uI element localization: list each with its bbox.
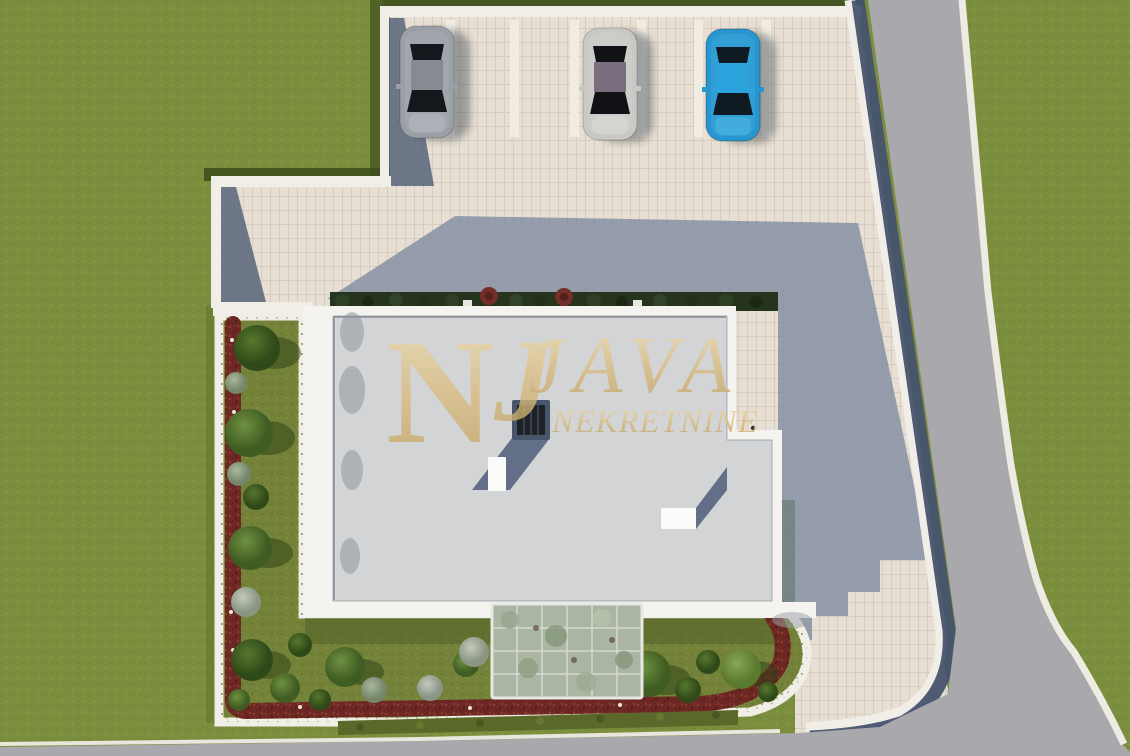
tree (228, 526, 272, 570)
curb-parking-left (380, 6, 389, 187)
flower-cluster (229, 610, 233, 614)
tree (231, 639, 273, 681)
car-mirror-right (757, 87, 764, 92)
car-windshield (590, 92, 630, 114)
curb-courtyard-top (211, 176, 391, 187)
bush (696, 650, 720, 674)
parked-car-2 (579, 28, 653, 142)
car-mirror-left (702, 87, 709, 92)
hedge-bush (656, 713, 664, 721)
car-mirror-right (451, 84, 458, 89)
vine-clump (545, 625, 567, 647)
car-windshield (713, 93, 753, 115)
hedge-bush (653, 294, 667, 308)
hedge-bush (596, 715, 604, 723)
bush (361, 677, 387, 703)
vine-clump (615, 651, 633, 669)
flower-cluster (298, 705, 302, 709)
bush (758, 682, 778, 702)
cast-shadow (772, 612, 812, 628)
hedge-bush (712, 711, 720, 719)
hedge-bush (335, 294, 349, 308)
car-mirror-right (634, 86, 641, 91)
vine-clump (501, 611, 519, 629)
car-windshield (407, 90, 447, 112)
hedge-bush (389, 293, 403, 307)
hedge-bush (476, 719, 484, 727)
bush-gray (459, 637, 489, 667)
cast-shadow (339, 366, 365, 414)
car-sunroof (594, 62, 626, 92)
tree (225, 409, 273, 457)
vine-clump (576, 672, 596, 692)
hedge-bush (445, 294, 459, 308)
car-roof (411, 60, 443, 90)
hedge-bush (750, 296, 762, 308)
bush-gray (417, 675, 443, 701)
car-rear-window (593, 46, 627, 62)
curb-courtyard-left (211, 176, 221, 308)
parking-stripe (570, 20, 579, 137)
hedge-post (463, 300, 472, 307)
hedge-bush (719, 294, 733, 308)
watermark-title: JAVA (528, 322, 740, 410)
cast-shadow (341, 450, 363, 490)
bush (243, 484, 269, 510)
render-canvas: N J JAVA NEKRETNINE (0, 0, 1130, 756)
bush (228, 689, 250, 711)
flower-cluster (468, 706, 472, 710)
hedge-post (633, 300, 642, 307)
branch-gap (533, 625, 539, 631)
parking-stripe (510, 20, 519, 137)
parked-car-1 (396, 26, 470, 140)
bush (225, 372, 247, 394)
hedge-bush (416, 721, 424, 729)
hedge-bush (587, 294, 601, 308)
red-shrub-core (560, 293, 568, 301)
site-plan-render: N J JAVA NEKRETNINE (0, 0, 1130, 756)
bush (227, 462, 251, 486)
flower-cluster (618, 703, 622, 707)
bush (288, 633, 312, 657)
vine-clump (518, 658, 538, 678)
branch-gap (571, 657, 577, 663)
car-mirror-left (396, 84, 403, 89)
tree (234, 325, 280, 371)
watermark-subtitle: NEKRETNINE (551, 403, 759, 439)
car-hood (592, 116, 628, 134)
bush (270, 673, 300, 703)
cast-shadow (340, 312, 364, 352)
red-shrub-core (485, 292, 493, 300)
car-hood (715, 117, 751, 135)
parked-car-3 (702, 29, 776, 143)
parking-stripe (694, 20, 703, 137)
bush (675, 677, 701, 703)
car-mirror-left (579, 86, 586, 91)
grass-shadow-garden-left (206, 305, 215, 723)
roof-chimney (661, 508, 696, 529)
car-roof (717, 63, 749, 93)
cast-shadow (340, 538, 360, 574)
branch-gap (609, 637, 615, 643)
car-hood (409, 114, 445, 132)
flower-cluster (230, 338, 234, 342)
bush (309, 689, 331, 711)
hedge-bush (536, 717, 544, 725)
car-rear-window (716, 47, 750, 63)
hedge-bush (509, 294, 523, 308)
hedge-bush (356, 723, 364, 731)
tree (325, 647, 365, 687)
curb-parking-top (382, 6, 862, 17)
vine-clump (593, 609, 611, 627)
watermark-monogram-n: N (386, 309, 494, 475)
car-rear-window (410, 44, 444, 60)
tree (721, 649, 761, 689)
bush-gray (231, 587, 261, 617)
